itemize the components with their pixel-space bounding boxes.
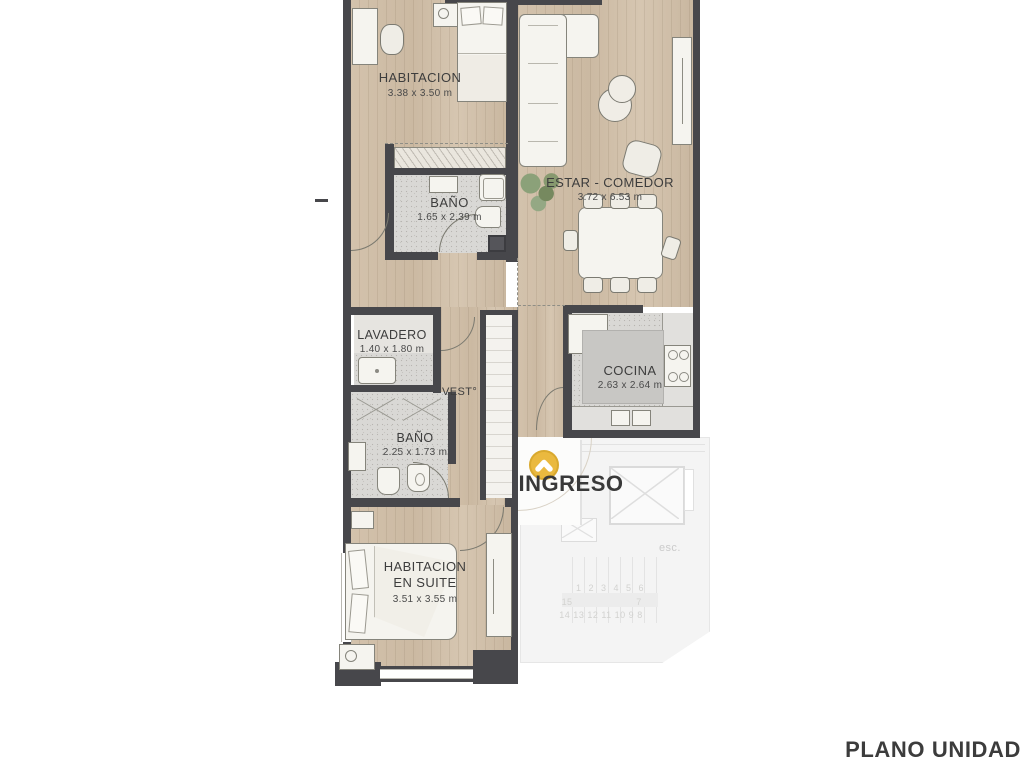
bidet <box>407 464 430 492</box>
shower <box>352 393 446 426</box>
side-table <box>433 3 459 27</box>
toilet <box>377 467 400 495</box>
kitchen-sink <box>632 410 651 426</box>
wall-segment <box>346 385 441 392</box>
wall-segment <box>511 500 518 656</box>
room-dims-cocina: 2.63 x 2.64 m <box>580 380 680 391</box>
sideboard <box>672 37 692 145</box>
room-dims-suite: 3.51 x 3.55 m <box>355 594 495 605</box>
chair <box>380 24 404 55</box>
room-label-vest: VEST° <box>442 385 496 399</box>
plant <box>515 166 567 216</box>
coffee-table <box>608 75 636 103</box>
bathroom-sink <box>429 176 458 193</box>
room-dims-bano1: 1.65 x 2.39 m <box>393 212 506 223</box>
wall-segment <box>343 498 460 507</box>
dining-chair <box>637 277 657 293</box>
room-label-bano2: BAÑO <box>363 431 467 445</box>
room-dims-habitacion: 3.38 x 3.50 m <box>355 88 485 99</box>
sofa <box>519 14 567 167</box>
stair-numbers-top: 1 2 3 4 5 6 <box>573 581 649 595</box>
wall-segment <box>565 305 643 313</box>
wall-segment <box>343 0 351 555</box>
wall-segment <box>512 315 518 500</box>
shower-drain <box>488 235 506 252</box>
nightstand <box>339 644 375 670</box>
desk <box>352 8 378 65</box>
bed <box>345 543 457 640</box>
wall-segment <box>693 0 700 313</box>
room-dims-estar: 3.72 x 6.53 m <box>525 192 695 203</box>
room-label-bano1: BAÑO <box>393 196 506 210</box>
stairs-label: esc. <box>659 541 695 555</box>
corner-cut <box>661 631 711 664</box>
stair-number-left: 15 <box>559 595 575 609</box>
entrance-label: INGRESO <box>515 477 627 491</box>
wall-segment <box>315 199 328 202</box>
closet-habitacion <box>394 147 506 169</box>
room-label-suite-line2: EN SUITE <box>355 576 495 590</box>
dining-table <box>578 207 663 279</box>
stair-numbers-bottom: 14 13 12 11 10 9 8 <box>553 608 649 622</box>
room-label-lavadero: LAVADERO <box>350 328 434 342</box>
shaft-slot <box>684 469 694 511</box>
wall-segment <box>473 650 518 684</box>
laundry-sink <box>358 357 396 384</box>
wall-segment <box>693 305 700 438</box>
room-label-habitacion: HABITACION <box>355 71 485 85</box>
dining-chair <box>563 230 578 251</box>
wall-segment <box>385 252 438 260</box>
dining-chair <box>583 277 603 293</box>
room-dims-bano2: 2.25 x 1.73 m <box>363 447 467 458</box>
wall-segment <box>506 0 518 262</box>
window <box>380 669 473 679</box>
floor-plan: esc. 1 2 3 4 5 6 15 7 14 13 12 11 10 9 8 <box>325 0 720 700</box>
wall-segment <box>563 430 700 438</box>
room-dims-lavadero: 1.40 x 1.80 m <box>350 344 434 355</box>
kitchen-sink <box>611 410 630 426</box>
wall-segment <box>477 252 518 260</box>
room-label-estar: ESTAR - COMEDOR <box>525 176 695 190</box>
wall-segment <box>346 307 441 315</box>
room-label-suite-line1: HABITACION <box>355 560 495 574</box>
stair-number-right: 7 <box>631 595 647 609</box>
bed <box>457 2 507 102</box>
nightstand <box>351 511 374 529</box>
dining-chair <box>610 277 630 293</box>
room-label-cocina: COCINA <box>580 364 680 378</box>
wall-segment <box>433 307 441 393</box>
closet-vest <box>486 315 512 498</box>
plan-title: PLANO UNIDAD <box>845 737 1021 763</box>
